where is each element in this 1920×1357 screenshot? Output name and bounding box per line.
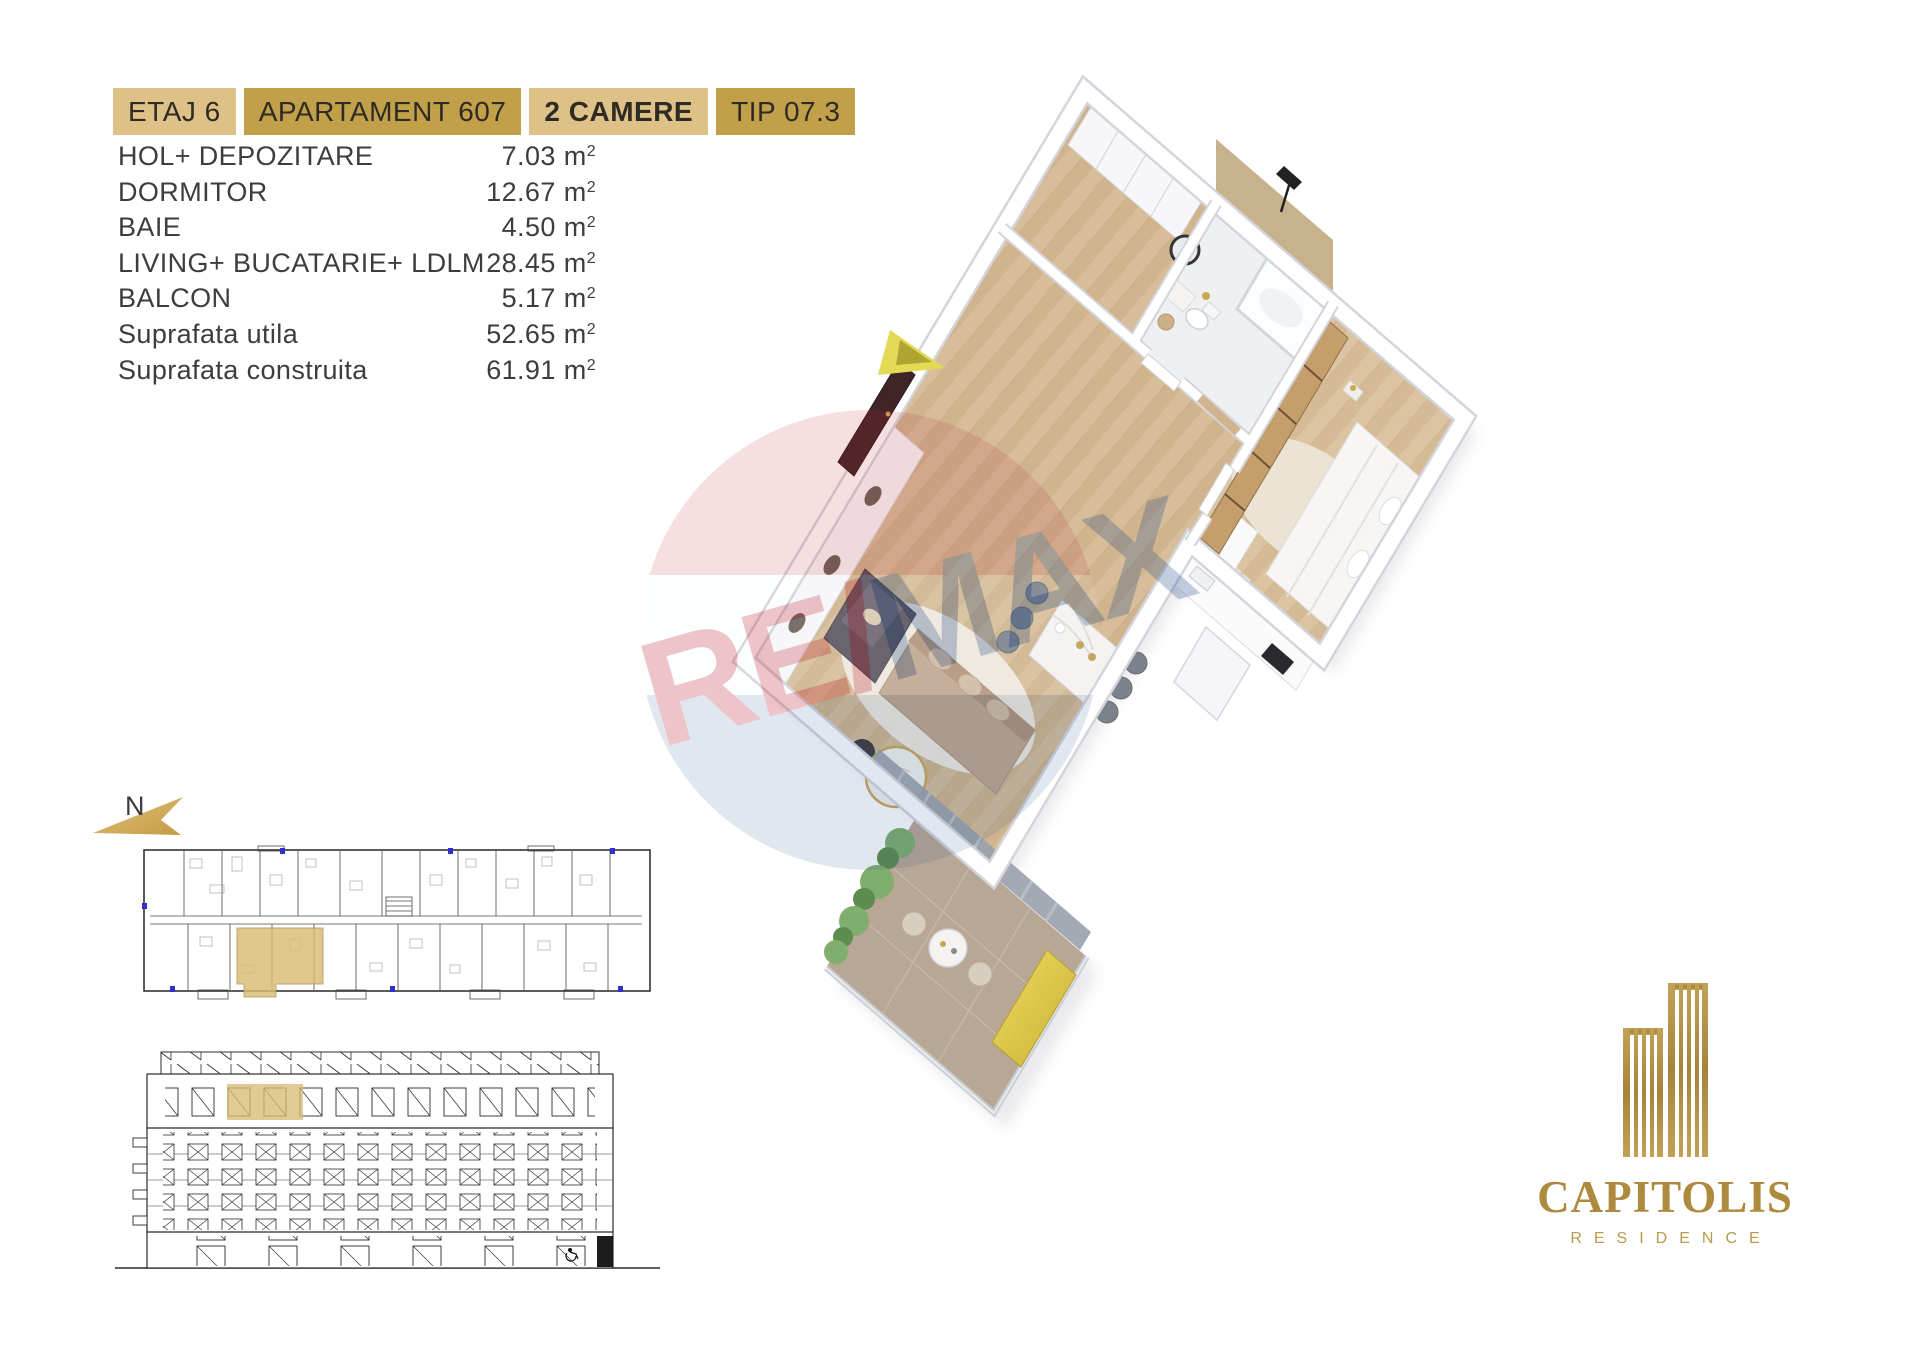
area-row-value: 28.45m2: [486, 248, 596, 279]
area-row-value: 4.50m2: [502, 212, 596, 243]
badge-apartment: APARTAMENT 607: [244, 88, 522, 135]
watermark: RE/MAX: [630, 410, 1209, 885]
logo-tagline: RESIDENCE: [1570, 1230, 1771, 1247]
logo-buildings-icon: [1623, 983, 1708, 1157]
area-row-label: BAIE: [118, 212, 181, 243]
area-row: DORMITOR 12.67m2: [118, 177, 596, 213]
area-row-label: DORMITOR: [118, 177, 268, 208]
north-compass-icon: N: [85, 775, 215, 845]
highlighted-unit-elevation: [227, 1084, 303, 1120]
area-summary-row: Suprafata construita 61.91m2: [118, 355, 596, 391]
area-row-label: LIVING+ BUCATARIE+ LDLM: [118, 248, 485, 279]
area-row-value: 12.67m2: [486, 177, 596, 208]
area-table: HOL+ DEPOZITARE 7.03m2 DORMITOR 12.67m2 …: [118, 141, 596, 390]
brand-logo: CAPITOLIS RESIDENCE: [1530, 965, 1850, 1265]
area-row-value: 7.03m2: [502, 141, 596, 172]
area-row-value: 52.65m2: [486, 319, 596, 350]
area-summary-row: Suprafata utila 52.65m2: [118, 319, 596, 355]
badge-floor: ETAJ 6: [113, 88, 236, 135]
floor-level-plan: [140, 845, 662, 1005]
area-row-value: 61.91m2: [486, 355, 596, 386]
area-row-label: Suprafata construita: [118, 355, 368, 386]
compass-label: N: [125, 791, 145, 821]
area-row: BALCON 5.17m2: [118, 283, 596, 319]
area-row: BAIE 4.50m2: [118, 212, 596, 248]
area-row: LIVING+ BUCATARIE+ LDLM 28.45m2: [118, 248, 596, 284]
area-row-value: 5.17m2: [502, 283, 596, 314]
area-row: HOL+ DEPOZITARE 7.03m2: [118, 141, 596, 177]
logo-name: CAPITOLIS: [1537, 1172, 1793, 1222]
area-row-label: Suprafata utila: [118, 319, 298, 350]
area-row-label: HOL+ DEPOZITARE: [118, 141, 373, 172]
bistro-table: [929, 929, 967, 967]
apartment-3d-plan: RE/MAX: [630, 60, 1490, 1140]
area-row-label: BALCON: [118, 283, 231, 314]
building-elevation: [115, 1040, 660, 1280]
